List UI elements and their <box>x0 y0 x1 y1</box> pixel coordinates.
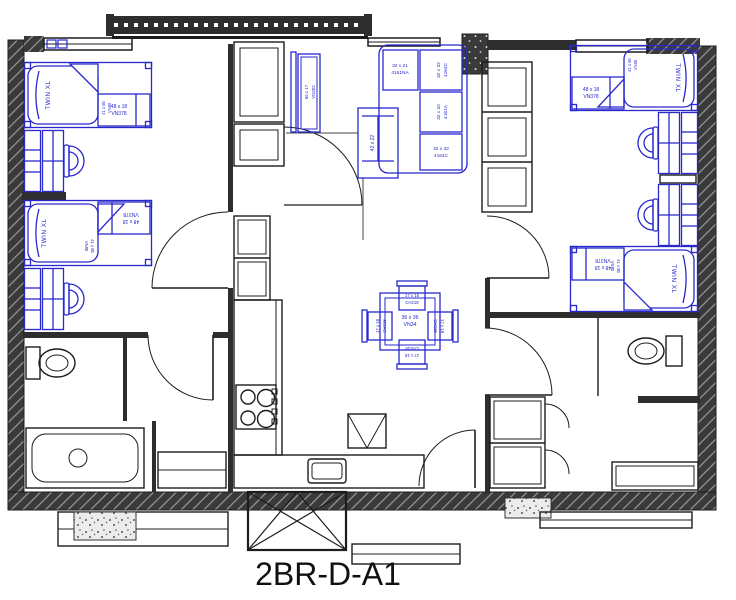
floor-plan-page: TWIN XL 48 x 18 VN378 41 x 80 VN80 TWIN … <box>0 0 736 600</box>
coffee-table: 42 x 22 <box>358 108 398 178</box>
bedroom-right-wall <box>485 278 490 328</box>
dining-chair-label: 17 x 18 <box>404 353 419 358</box>
kitchen <box>234 216 424 488</box>
dining-table-label: VN34 <box>404 322 417 328</box>
bath-right-wall <box>485 312 700 318</box>
cooktop <box>236 385 277 429</box>
sofa-label: 32 x 32 <box>436 62 442 78</box>
dining-chair-left: 17 x 18 CH218 <box>362 310 392 342</box>
dining-chair-label: CH218 <box>405 300 419 305</box>
bench-shelf-left <box>158 452 226 488</box>
bedroom-left-wall <box>228 288 233 332</box>
sofa-label: 4164C <box>434 153 449 159</box>
dining-chair-right: 17 x 18 CH218 <box>428 310 458 342</box>
sofa-label: 32 x 21 <box>392 63 408 69</box>
kitchen-counter-west <box>234 300 282 455</box>
top-window-band <box>112 16 368 34</box>
dining-table-label: 36 x 36 <box>401 315 418 321</box>
dining-chair-label: CH218 <box>382 319 387 333</box>
sectional-sofa: 32 x 21 4161NA 32 x 32 4164C 32 x 32 416… <box>379 45 467 173</box>
bathroom-right <box>490 336 698 490</box>
exterior-wall-right <box>698 46 716 492</box>
media-console: 56 x 17 VN202 <box>291 52 320 132</box>
concrete-patch-right <box>505 498 551 518</box>
desk-chair-left-2 <box>64 283 84 315</box>
dining-chair-label: CH218 <box>405 346 419 351</box>
bath-left-partition <box>123 337 127 421</box>
bedroom-right-door-swing <box>487 216 549 278</box>
desk-chair-left-1 <box>64 145 84 177</box>
sofa-end-section <box>420 134 462 170</box>
media-console-label: VN202 <box>311 85 316 99</box>
closet-left-wall <box>152 421 156 492</box>
toilet-right <box>628 336 682 366</box>
dishwasher <box>348 414 386 448</box>
sofa-label: 4161A <box>443 104 449 119</box>
dining-chair-top: 17 x 18 CH218 <box>397 281 427 310</box>
exterior-wall-left <box>8 40 24 492</box>
dresser-pair-left-1 <box>25 131 64 192</box>
desk-chair-right-1 <box>638 127 658 159</box>
bed-left-top <box>25 63 152 128</box>
dining-chair-label: 17 x 18 <box>375 318 380 333</box>
tub-drain <box>69 449 87 467</box>
bed-right-bottom <box>571 247 698 312</box>
dining-chair-label: CH218 <box>433 319 438 333</box>
sofa-label: 4161NA <box>391 70 409 76</box>
bed-right-top <box>571 46 698 111</box>
media-console-label: 56 x 17 <box>304 84 309 99</box>
bath-left-wall <box>24 332 148 338</box>
bath-left-wall <box>213 332 228 338</box>
wall-corner-top-left <box>24 36 44 52</box>
coffee-table-label: 42 x 22 <box>370 135 376 152</box>
wall-stub-right <box>660 175 696 183</box>
tv-panel <box>291 52 296 132</box>
dining-chair-bottom: 17 x 18 CH218 <box>397 340 427 369</box>
window-pier-left <box>106 14 114 36</box>
utility-closet-stack <box>482 62 532 212</box>
toilet-room-wall <box>638 396 700 403</box>
bath-left-door-swing <box>148 335 213 400</box>
wall-stub-left <box>22 192 66 200</box>
bathtub <box>26 428 144 488</box>
sofa-label: 32 x 32 <box>433 146 449 152</box>
plan-title: 2BR-D-A1 <box>255 556 401 592</box>
concrete-patch-left <box>74 512 136 540</box>
floor-plan-drawing: TWIN XL 48 x 18 VN378 41 x 80 VN80 TWIN … <box>0 0 736 600</box>
kitchen-west-wall <box>228 332 233 492</box>
bedroom-left-door-swing <box>152 212 228 288</box>
bath-right-door-swing <box>485 328 552 395</box>
bedroom-left-wall <box>228 44 233 212</box>
dining-chair-label: 17 x 18 <box>405 293 420 298</box>
exterior-wall-bottom <box>8 492 716 510</box>
vanity-right <box>612 462 698 490</box>
desk-chair-right-2 <box>638 199 658 231</box>
structural-column <box>462 34 488 74</box>
dresser-pair-left-2 <box>25 269 64 330</box>
window-pier-right <box>364 14 372 36</box>
bedroom-right-wall <box>485 395 490 492</box>
dining-set: 36 x 36 VN34 17 x 18 CH218 17 x 18 CH218… <box>362 281 458 369</box>
dining-chair-label: 17 x 18 <box>440 319 445 334</box>
sofa-label: 4164C <box>443 62 449 77</box>
top-wall-segment <box>488 40 576 50</box>
bed-left-bottom <box>25 201 152 266</box>
window-top-left <box>44 38 132 50</box>
sofa-armless-section <box>383 50 418 90</box>
sofa-label: 32 x 32 <box>436 104 442 120</box>
furniture: 32 x 21 4161NA 32 x 32 4164C 32 x 32 416… <box>25 45 698 369</box>
dresser-pair-right-1 <box>659 113 698 174</box>
dresser-pair-right-2 <box>659 185 698 246</box>
toilet-left <box>26 347 75 379</box>
linen-closet-right <box>490 397 569 488</box>
entry-door <box>419 430 475 488</box>
